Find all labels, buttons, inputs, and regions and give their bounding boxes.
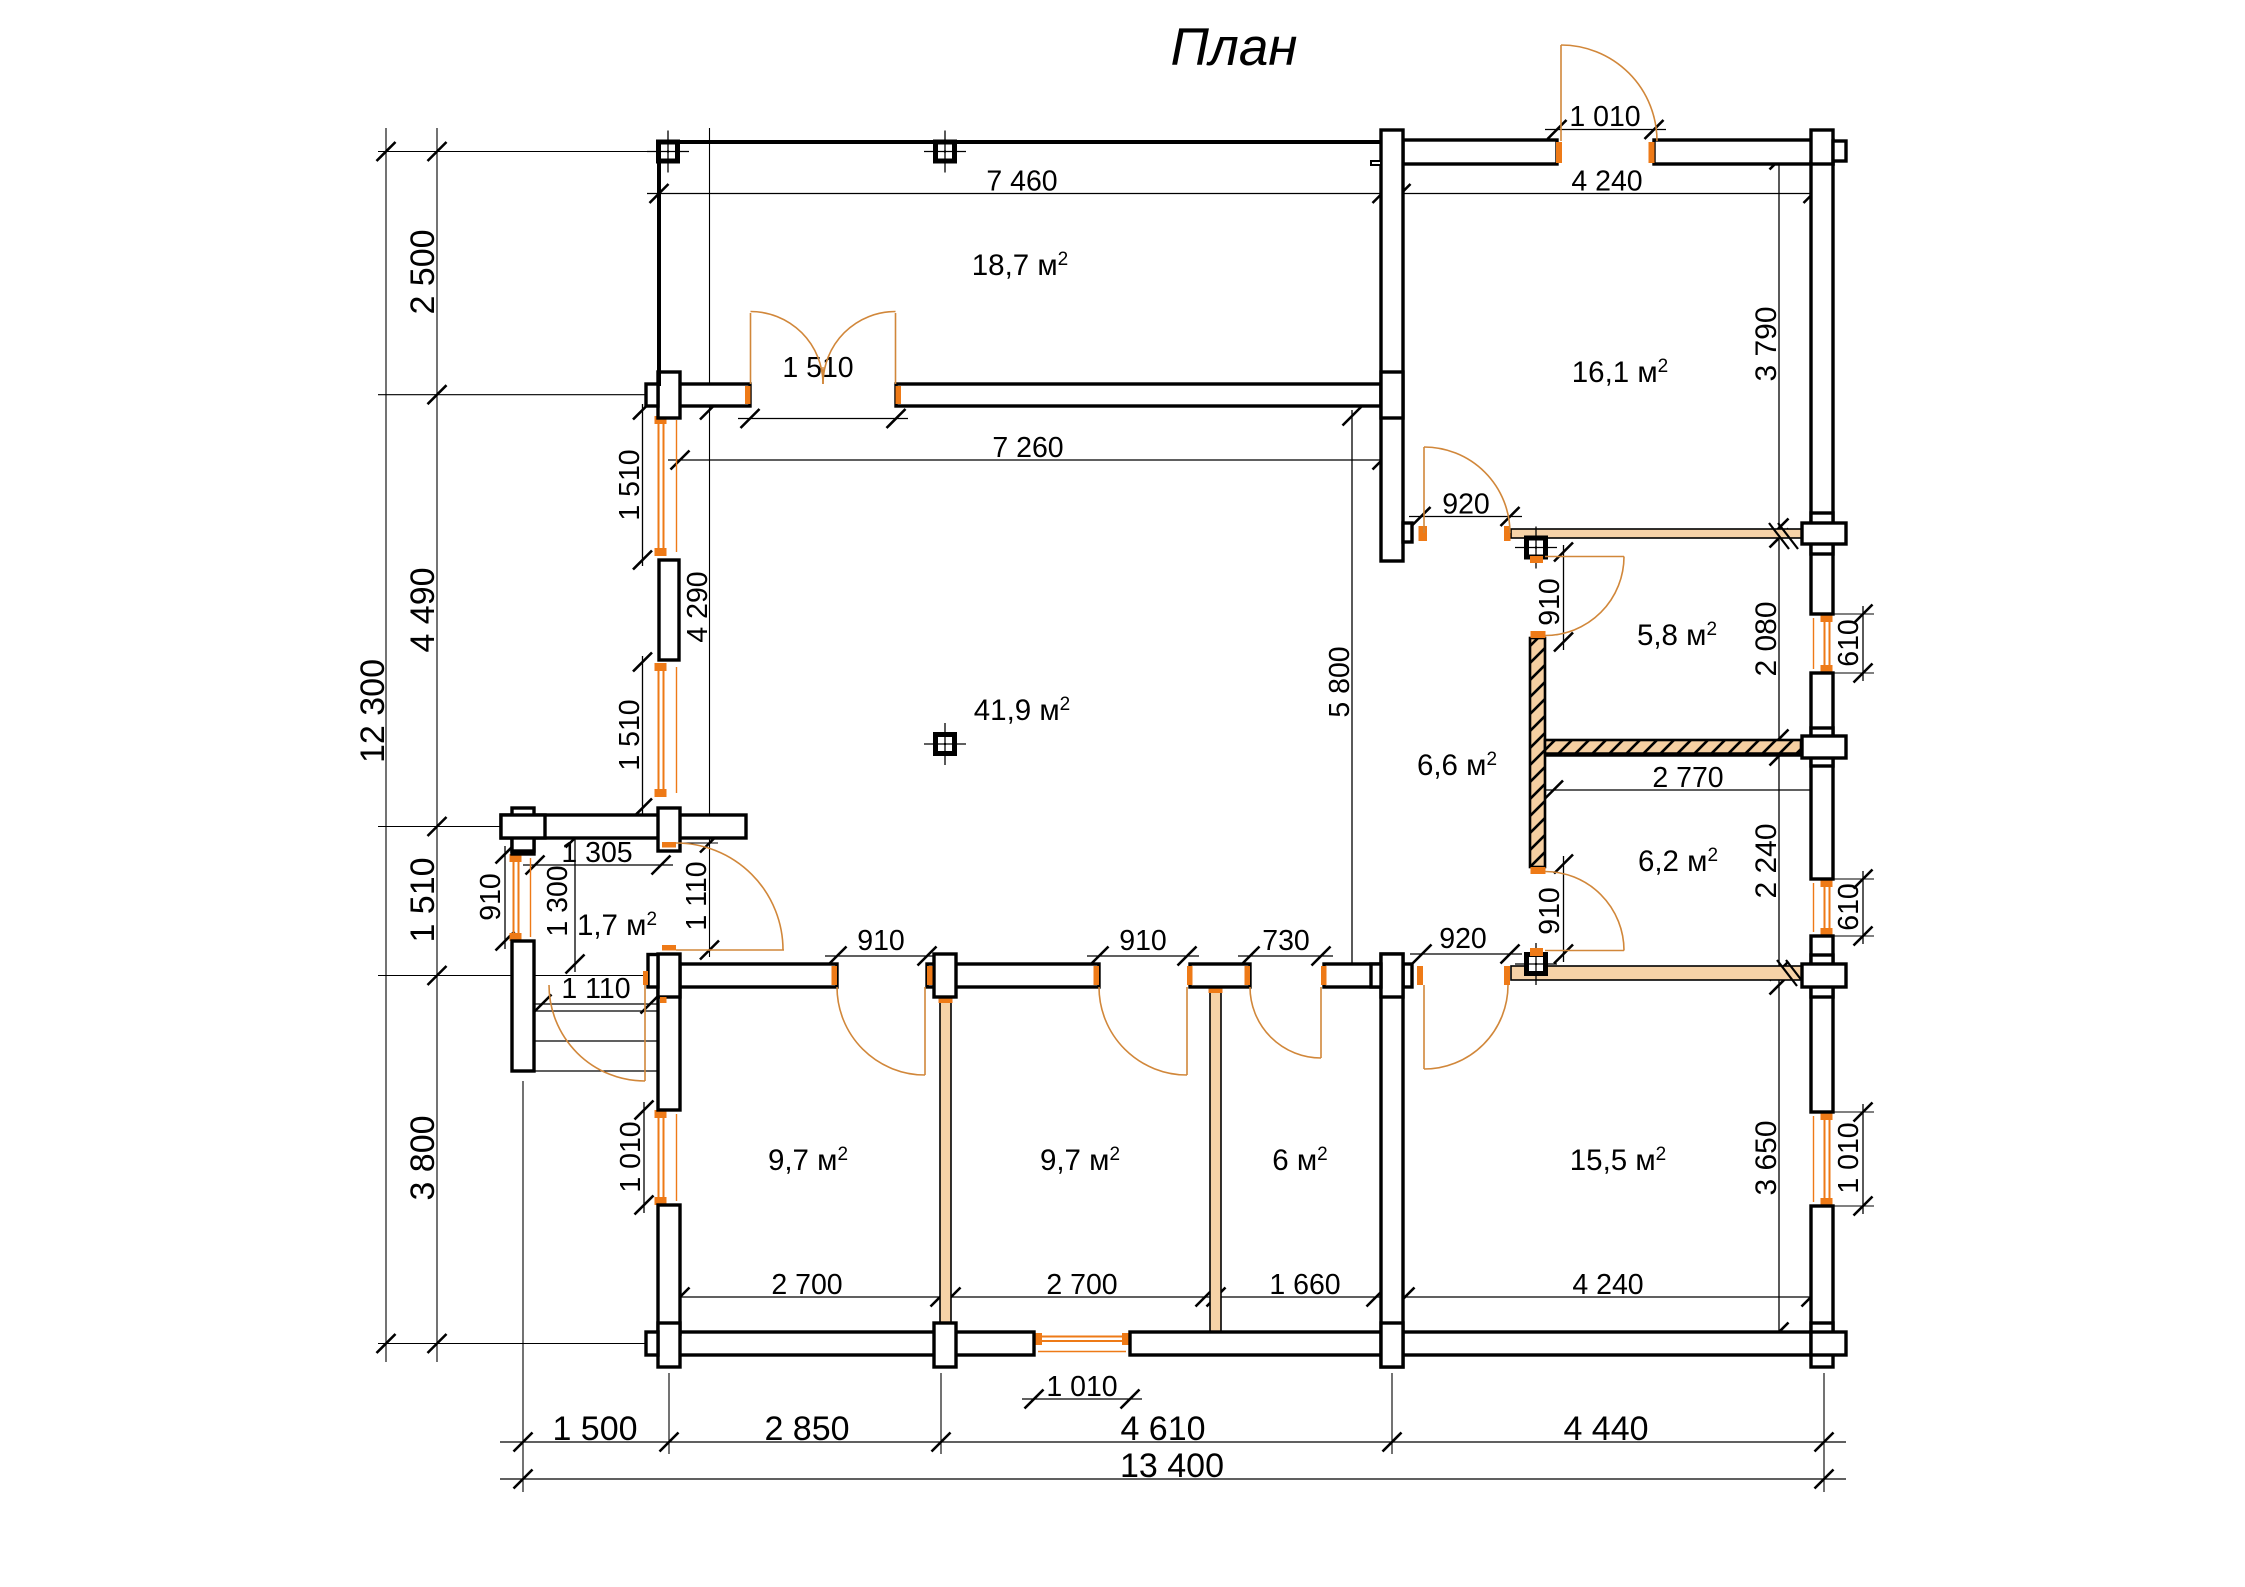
svg-text:920: 920 (1439, 923, 1487, 955)
svg-text:3 790: 3 790 (1750, 306, 1783, 381)
svg-text:2 850: 2 850 (764, 1410, 849, 1448)
svg-text:41,9 м2: 41,9 м2 (974, 694, 1070, 727)
svg-text:910: 910 (475, 873, 507, 921)
svg-text:1 500: 1 500 (552, 1410, 637, 1448)
svg-text:5 800: 5 800 (1324, 646, 1356, 717)
svg-text:3 650: 3 650 (1750, 1120, 1783, 1195)
svg-text:15,5 м2: 15,5 м2 (1570, 1144, 1666, 1177)
svg-text:18,7 м2: 18,7 м2 (972, 249, 1068, 282)
svg-text:4 490: 4 490 (404, 567, 442, 652)
svg-text:7 260: 7 260 (992, 432, 1063, 464)
svg-text:2 500: 2 500 (404, 229, 442, 314)
svg-text:1 660: 1 660 (1269, 1269, 1340, 1301)
svg-text:1 010: 1 010 (1569, 101, 1640, 133)
svg-text:6,6 м2: 6,6 м2 (1417, 749, 1497, 782)
svg-text:План: План (1171, 18, 1298, 77)
svg-text:9,7 м2: 9,7 м2 (768, 1144, 848, 1177)
svg-text:1 010: 1 010 (1833, 1122, 1865, 1193)
svg-text:1 010: 1 010 (615, 1121, 647, 1192)
svg-text:1 110: 1 110 (681, 861, 713, 930)
svg-text:2 770: 2 770 (1652, 762, 1723, 794)
svg-text:610: 610 (1833, 619, 1865, 667)
svg-text:1 010: 1 010 (1046, 1371, 1117, 1403)
svg-text:16,1 м2: 16,1 м2 (1572, 356, 1668, 389)
svg-text:910: 910 (1119, 925, 1167, 957)
svg-text:4 240: 4 240 (1572, 1269, 1643, 1301)
svg-text:1 110: 1 110 (561, 973, 630, 1005)
svg-text:3 800: 3 800 (404, 1115, 442, 1200)
svg-text:920: 920 (1442, 489, 1490, 521)
svg-text:730: 730 (1262, 925, 1310, 957)
svg-text:6,2 м2: 6,2 м2 (1638, 845, 1718, 878)
svg-text:4 290: 4 290 (682, 571, 714, 642)
svg-text:1 510: 1 510 (404, 857, 442, 942)
svg-text:12 300: 12 300 (354, 659, 392, 763)
svg-text:4 440: 4 440 (1563, 1410, 1648, 1448)
svg-text:13 400: 13 400 (1120, 1447, 1224, 1485)
svg-text:910: 910 (1534, 887, 1566, 935)
svg-text:7 460: 7 460 (986, 166, 1057, 198)
svg-text:1 510: 1 510 (614, 449, 646, 520)
svg-text:610: 610 (1833, 883, 1865, 931)
svg-text:910: 910 (857, 925, 905, 957)
svg-text:5,8 м2: 5,8 м2 (1637, 619, 1717, 652)
svg-text:910: 910 (1534, 578, 1566, 626)
svg-text:2 240: 2 240 (1750, 823, 1783, 898)
svg-text:1,7 м2: 1,7 м2 (577, 909, 657, 942)
svg-text:9,7 м2: 9,7 м2 (1040, 1144, 1120, 1177)
svg-text:2 700: 2 700 (771, 1269, 842, 1301)
svg-text:2 080: 2 080 (1750, 601, 1783, 676)
svg-text:4 240: 4 240 (1571, 166, 1642, 198)
svg-text:1 510: 1 510 (614, 699, 646, 770)
svg-text:2 700: 2 700 (1046, 1269, 1117, 1301)
svg-text:4 610: 4 610 (1120, 1410, 1205, 1448)
svg-text:1 300: 1 300 (542, 865, 574, 936)
